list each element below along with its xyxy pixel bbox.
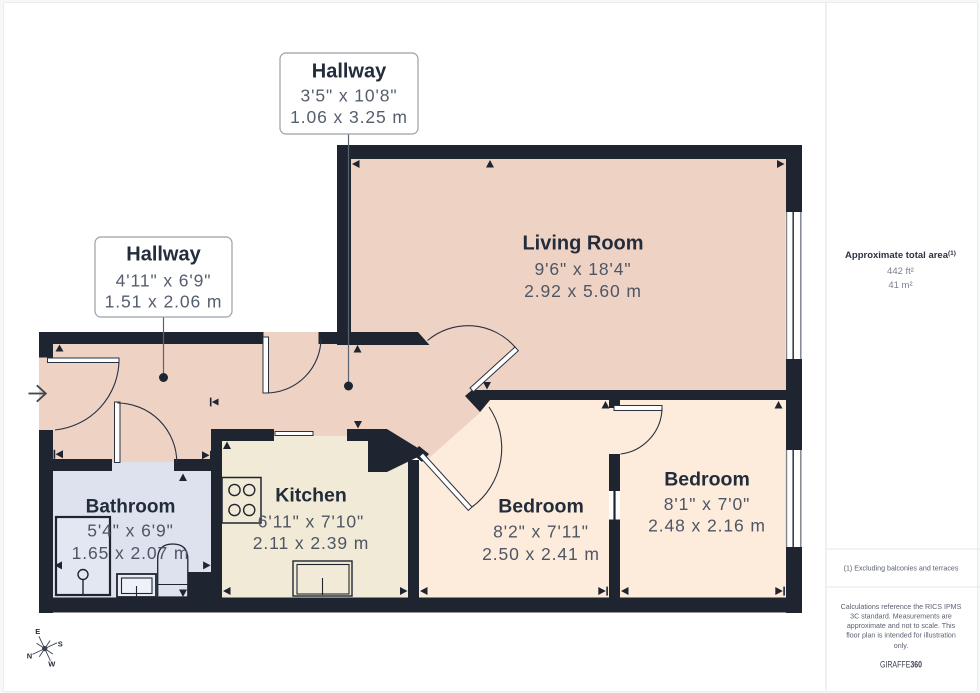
svg-text:2.92 x 5.60 m: 2.92 x 5.60 m (524, 281, 642, 301)
svg-text:6'11" x 7'10": 6'11" x 7'10" (258, 512, 364, 532)
svg-text:Approximate total area(1): Approximate total area(1) (845, 250, 956, 261)
svg-text:Calculations reference the RIC: Calculations reference the RICS IPMS (841, 603, 962, 611)
svg-text:8'1" x 7'0": 8'1" x 7'0" (664, 494, 750, 514)
svg-text:1.51 x 2.06 m: 1.51 x 2.06 m (105, 292, 223, 312)
svg-text:3C standard. Measurements are: 3C standard. Measurements are (850, 613, 952, 621)
svg-text:2.48 x 2.16 m: 2.48 x 2.16 m (648, 516, 766, 536)
svg-text:N: N (27, 651, 32, 660)
svg-text:Kitchen: Kitchen (275, 485, 347, 507)
svg-text:Bedroom: Bedroom (498, 496, 584, 518)
svg-text:Hallway: Hallway (126, 244, 201, 266)
svg-text:9'6" x 18'4": 9'6" x 18'4" (534, 259, 631, 279)
svg-text:5'4" x 6'9": 5'4" x 6'9" (87, 521, 173, 541)
svg-text:(1) Excluding balconies and te: (1) Excluding balconies and terraces (844, 565, 959, 573)
svg-text:4'11" x 6'9": 4'11" x 6'9" (116, 271, 212, 291)
svg-text:approximate and not to scale.: approximate and not to scale. This (847, 622, 956, 630)
svg-text:442 ft²: 442 ft² (887, 266, 914, 277)
svg-text:GIRAFFE360: GIRAFFE360 (880, 660, 922, 670)
svg-text:S: S (58, 639, 63, 648)
svg-text:Living Room: Living Room (522, 233, 643, 255)
svg-text:1.65 x 2.07 m: 1.65 x 2.07 m (72, 543, 190, 563)
svg-text:W: W (48, 660, 56, 669)
svg-text:2.50 x 2.41 m: 2.50 x 2.41 m (482, 544, 600, 564)
svg-text:8'2" x 7'11": 8'2" x 7'11" (493, 522, 589, 542)
svg-text:Hallway: Hallway (312, 61, 387, 83)
svg-text:41 m²: 41 m² (888, 280, 912, 291)
svg-text:Bathroom: Bathroom (86, 497, 176, 518)
svg-text:2.11 x 2.39 m: 2.11 x 2.39 m (253, 533, 369, 553)
svg-text:E: E (35, 627, 40, 636)
svg-text:floor plan is intended for ill: floor plan is intended for illustration (846, 632, 956, 640)
svg-text:1.06 x 3.25 m: 1.06 x 3.25 m (290, 107, 408, 127)
svg-text:3'5" x 10'8": 3'5" x 10'8" (300, 86, 397, 106)
svg-text:only.: only. (894, 642, 908, 650)
svg-text:Bedroom: Bedroom (664, 469, 750, 491)
